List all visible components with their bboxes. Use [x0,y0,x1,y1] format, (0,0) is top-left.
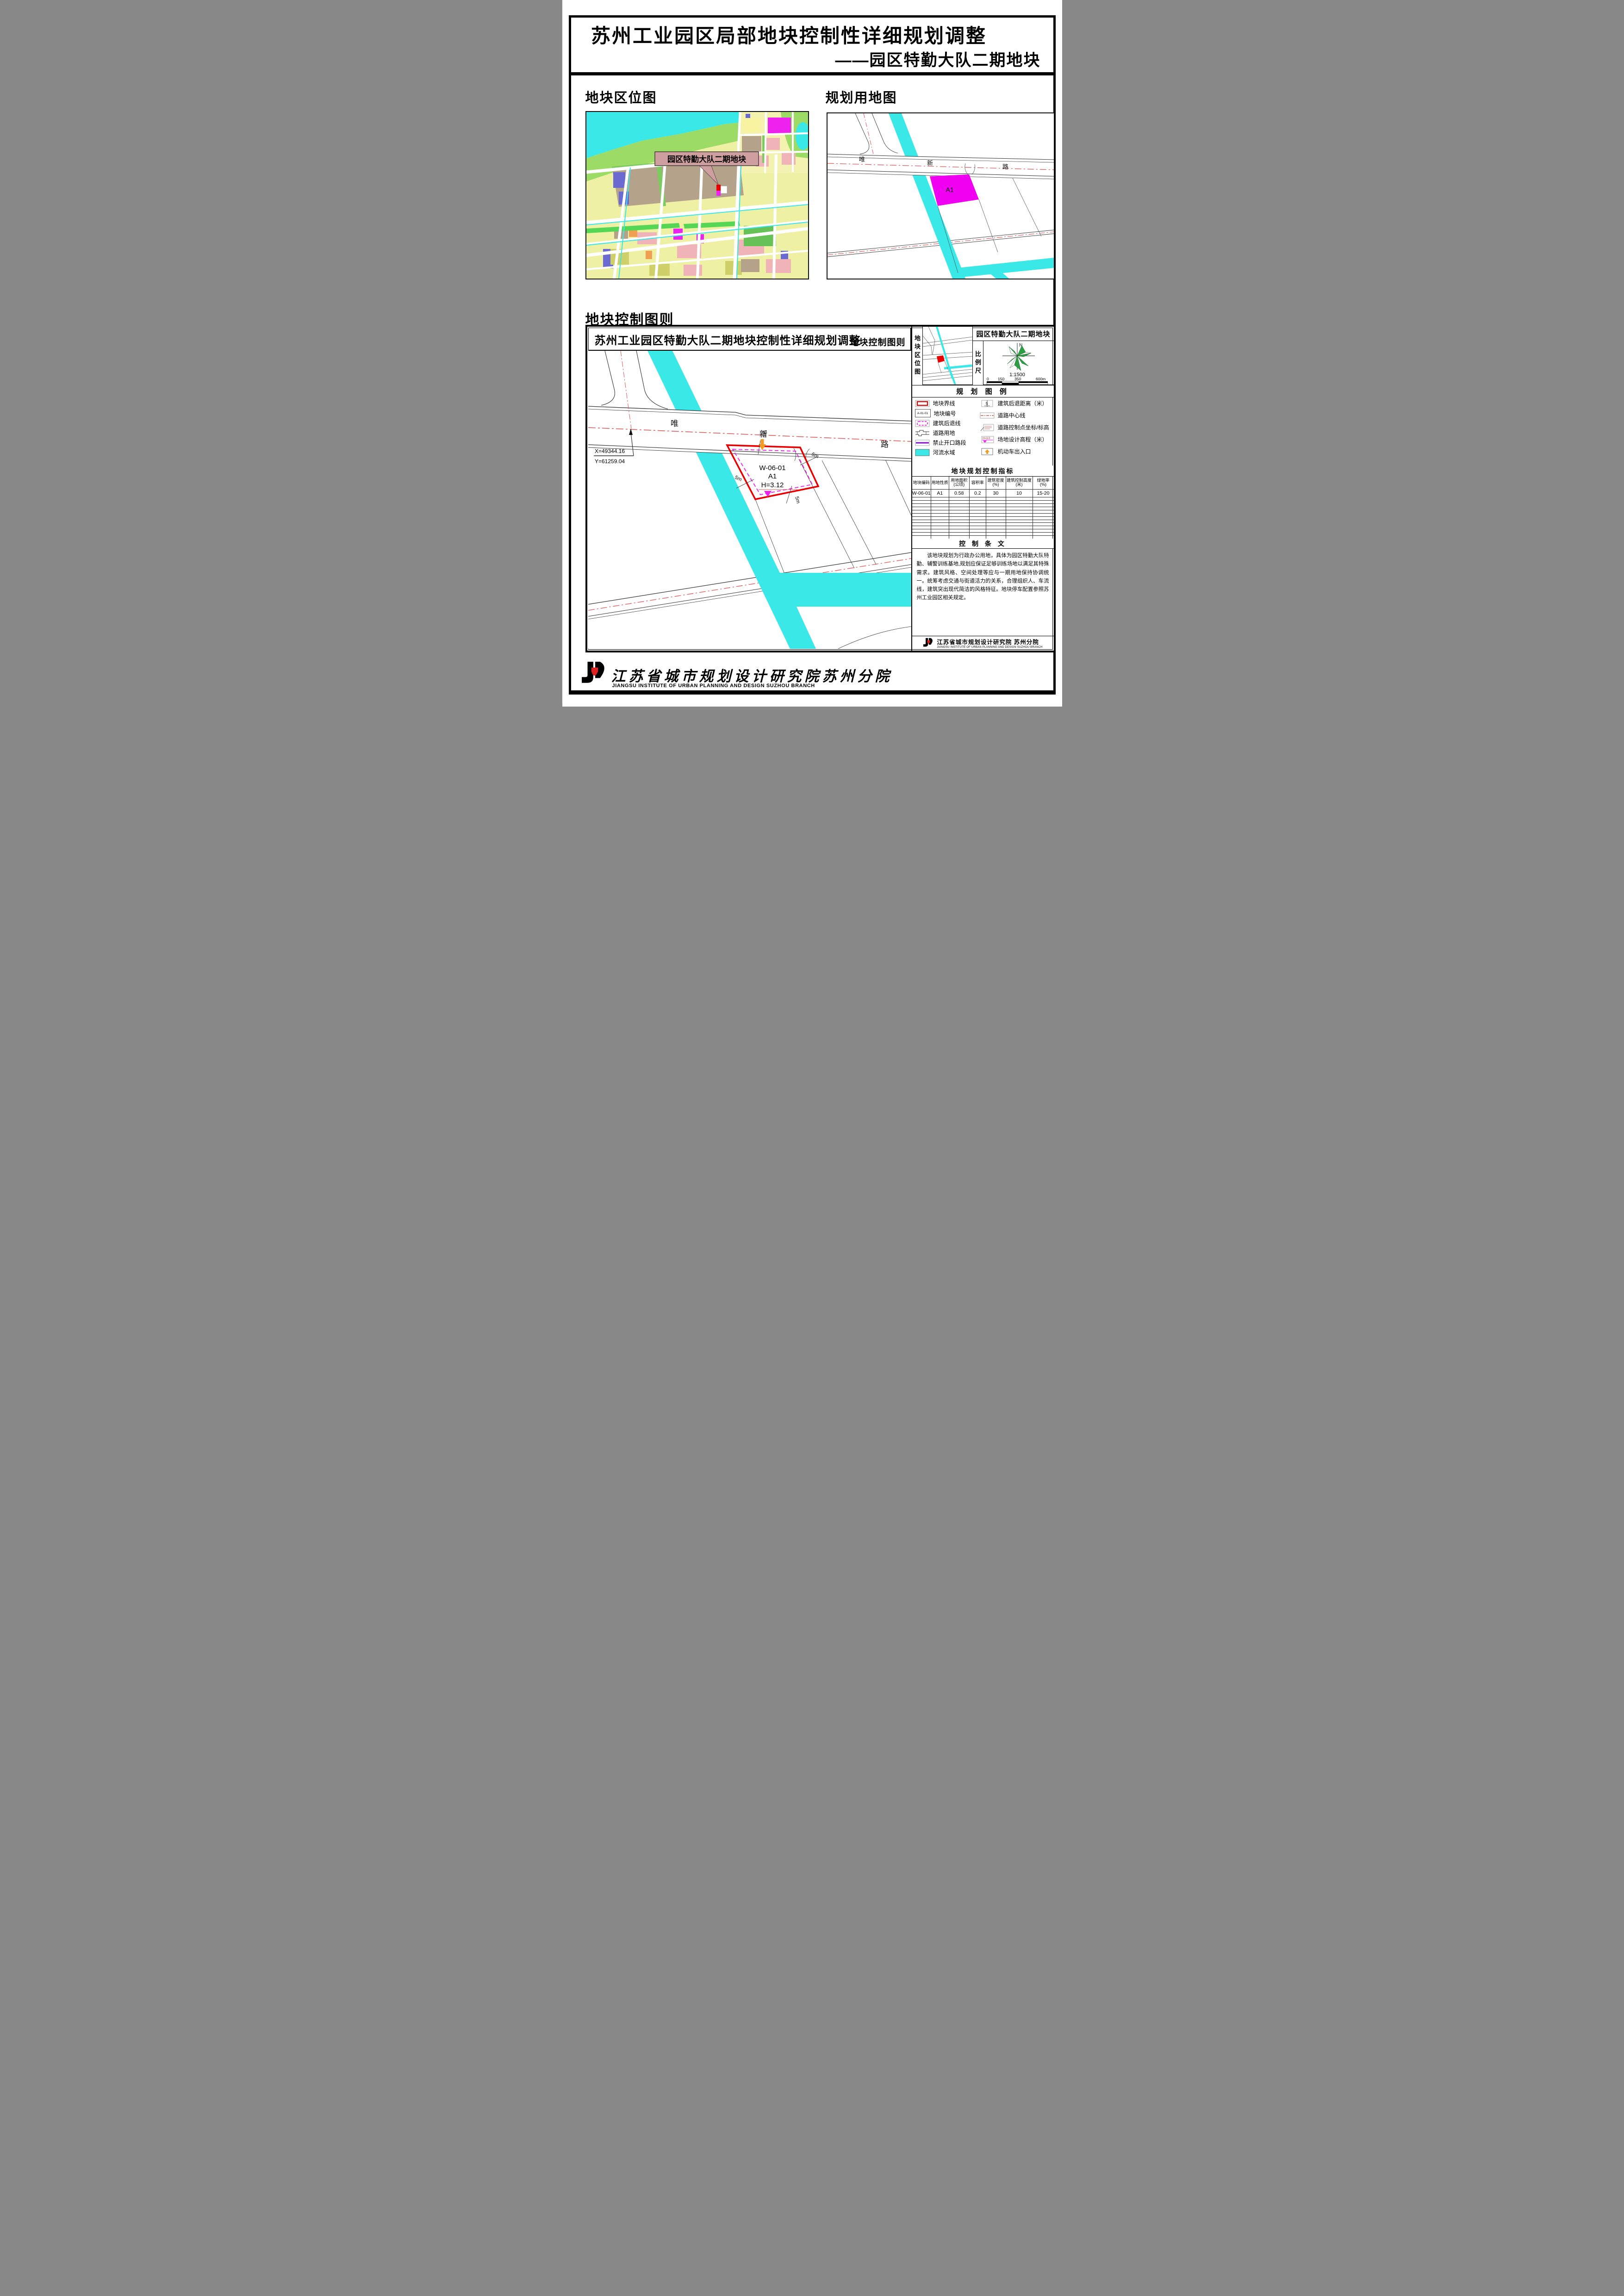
location-overview-map: 园区特勤大队二期地块 [585,111,809,279]
legend-item-setback-distance: 5 建筑后退距离（米） [980,399,1049,407]
firm-logo-icon [923,638,934,648]
wind-rose-icon [1007,346,1031,371]
table-empty-row [912,526,1054,529]
road-land-icon [915,429,930,437]
section-label-location-map: 地块区位图 [585,87,657,106]
plot-code-label: W-06-01 [759,464,785,472]
road-name-char1: 唯 [671,419,678,428]
water-icon [915,449,930,456]
side-location-map-label: 地块区位图 [912,327,923,385]
sheet-header: 苏州工业园区特勤大队二期地块控制性详细规划调整 地块控制图则 [588,328,911,351]
legend-item-road-centerline: 道路中心线 [980,411,1049,419]
footer-firm-en: JIANGSU INSTITUTE OF URBAN PLANNING AND … [612,683,815,689]
sheet-header-right-label: 地块控制图则 [850,335,905,348]
legend-item-road-land: 道路用地 [915,429,966,437]
road-control-point-icon [980,424,995,431]
road-centerline-icon [980,412,995,419]
table-header-row: 地块编码 用地性质 用地面积(公顷) 容积率 建筑密度(%) 建筑控制高度(米)… [912,477,1054,490]
no-access-icon [915,439,930,447]
legend-item-road-control-point: 道路控制点坐标/标高 [980,423,1049,431]
firm-name-cn: 江苏省城市规划设计研究院 苏州分院 [937,637,1042,646]
table-empty-row [912,507,1054,510]
coord-x-label: X=49344.16 [595,448,625,454]
road-name-char3: 路 [1002,163,1008,170]
indicators-title-band: 地块规划控制指标 [912,465,1054,477]
legend-item-water: 河流水域 [915,448,966,456]
road-name-char1: 唯 [859,156,865,163]
legend-item-site-elevation: H=3.0 场地设计高程（米） [980,435,1049,443]
compass-scale-block: N 1:1500 0 150 350 600m [983,341,1054,385]
coord-y-label: Y=61259.04 [595,458,625,465]
plot-a1-label: A1 [946,186,953,193]
plan-document-page: 苏州工业园区局部地块控制性详细规划调整 ——园区特勤大队二期地块 地块区位图 规… [562,0,1062,707]
legend-item-no-access: 禁止开口路段 [915,439,966,447]
legend-right-column: 5 建筑后退距离（米） 道路中心线 道路控制点坐标/标高 H=3.0 场地设计高… [980,399,1049,457]
scale-label: 比例尺 [972,341,983,385]
location-overview-map-canvas: 园区特勤大队二期地块 [586,112,808,279]
setback-distance-icon: 5 [980,400,995,407]
sub-title: ——园区特勤大队二期地块 [747,47,1041,71]
table-empty-row [912,529,1054,533]
title-divider [571,72,1053,75]
table-empty-row [912,514,1054,517]
provisions-text: 该地块规划为行政办公用地，具体为园区特勤大队特勤、辅警训练基地,规划应保证足够训… [912,549,1054,636]
footer-firm-cn: 江苏省城市规划设计研究院苏州分院 [611,664,893,685]
sheet-header-title: 苏州工业园区特勤大队二期地块控制性详细规划调整 [595,331,861,348]
landuse-map: A1 唯 新 路 [827,112,1055,279]
table-empty-row [912,533,1054,536]
table-empty-row [912,501,1054,504]
svg-text:5: 5 [986,402,988,406]
svg-text:H=3.0: H=3.0 [983,437,990,440]
firm-signature-band: 江苏省城市规划设计研究院 苏州分院 JIANGSU INSTITUTE OF U… [912,636,1054,649]
scale-tick-600: 600m [1036,377,1045,381]
plot-use-label: A1 [768,472,776,480]
landuse-map-canvas: A1 唯 新 路 [828,113,1054,279]
scale-tick-350: 350 [1014,377,1021,381]
road-name-char2: 新 [927,160,933,167]
table-empty-row [912,497,1054,501]
table-data-row: W-06-01 A1 0.58 0.2 30 10 15-20 [912,490,1054,497]
table-empty-row [912,520,1054,523]
section-label-landuse-map: 规划用地图 [826,87,897,106]
table-empty-row [912,510,1054,514]
callout-label: 园区特勤大队二期地块 [667,155,747,164]
table-empty-row [912,504,1054,507]
provisions-title-band: 控 制 条 文 [912,539,1054,549]
vehicle-entrance-icon-legend [980,448,995,455]
road-name-char3: 路 [881,440,889,449]
legend-item-setback-line: 建筑后退线 [915,419,966,427]
plot-number-icon: A-01-01 [915,409,931,417]
setback-line-icon [915,420,930,427]
legend-item-vehicle-entrance: 机动车出入口 [980,447,1049,455]
main-title: 苏州工业园区局部地块控制性详细规划调整 [590,20,988,49]
footer-logo-icon [581,661,608,686]
setback-dim-top: 5m [762,430,767,437]
highlight-plot-red [716,185,721,191]
table-empty-row [912,523,1054,526]
table-empty-row [912,517,1054,520]
site-elevation-icon-legend: H=3.0 [980,436,995,443]
scale-tick-0: 0 [987,377,989,381]
scale-tick-150: 150 [998,377,1004,381]
legend-title-band: 规 划 图 例 [912,385,1054,397]
legend-body: 地块界线 A-01-01 地块编号 建筑后退线 道路用地 禁止开口路段 河流水域 [912,397,1054,466]
scale-bar [987,381,1048,385]
legend-item-plot-boundary: 地块界线 [915,399,966,407]
side-location-map [923,327,972,385]
legend-left-column: 地块界线 A-01-01 地块编号 建筑后退线 道路用地 禁止开口路段 河流水域 [915,399,966,458]
side-panel-title: 园区特勤大队二期地块 [972,327,1054,341]
indicators-table: 地块编码 用地性质 用地面积(公顷) 容积率 建筑密度(%) 建筑控制高度(米)… [912,477,1054,539]
main-plan-drawing: W-06-01 A1 H=3.12 唯 新 路 X=49344.16 Y=612… [588,351,911,649]
legend-item-plot-number: A-01-01 地块编号 [915,409,966,417]
plot-boundary-icon [915,400,930,407]
plot-elevation-label: H=3.12 [761,481,784,489]
firm-name-en: JIANGSU INSTITUTE OF URBAN PLANNING AND … [937,646,1042,649]
